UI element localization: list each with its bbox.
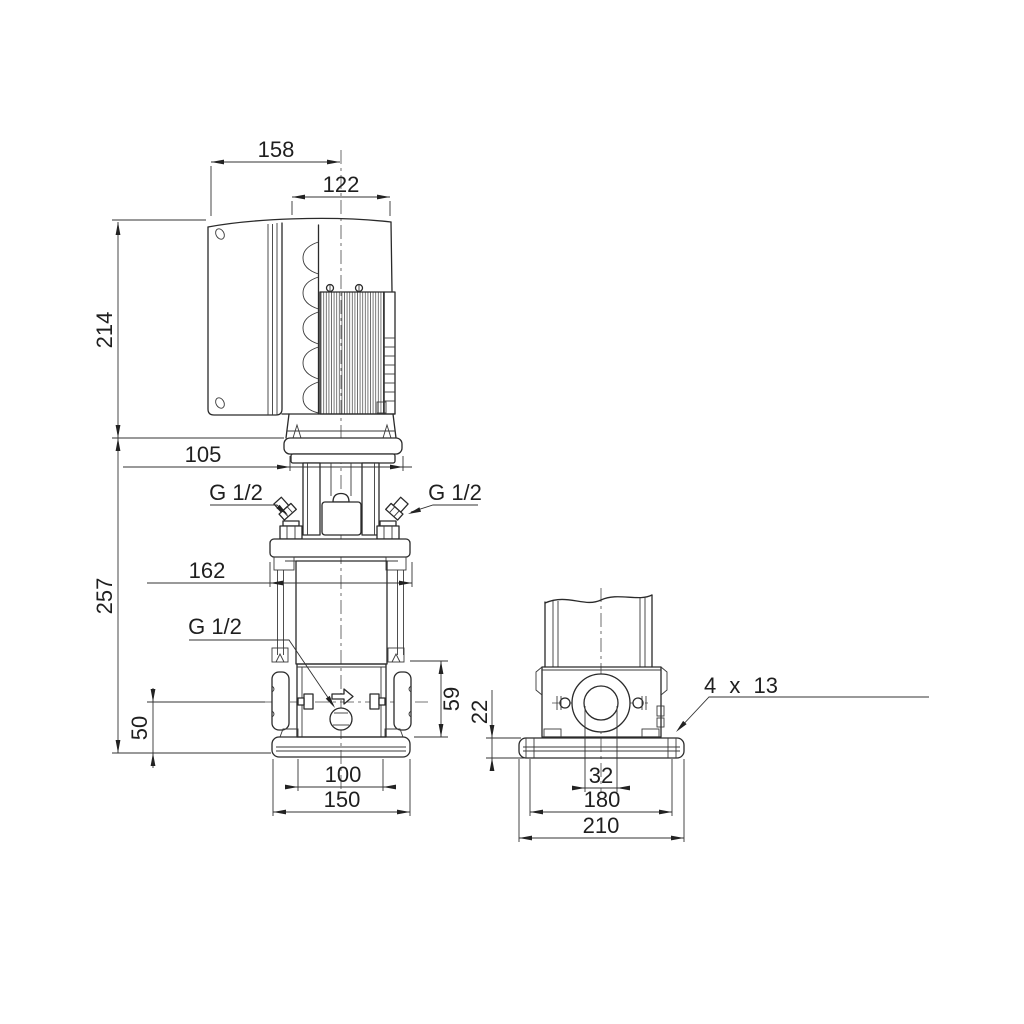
coupling-block bbox=[322, 502, 361, 535]
staybolt-nut bbox=[377, 526, 399, 539]
dim-label-32: 32 bbox=[589, 763, 613, 788]
dim-overall-width: 158 bbox=[211, 137, 340, 216]
dim-label-100: 100 bbox=[325, 762, 362, 787]
dim-base-height: 22 bbox=[467, 690, 524, 771]
drawing-page: 158 122 214 105 bbox=[0, 0, 1024, 1024]
drain-plug bbox=[330, 708, 352, 730]
g12-plug-right-icon bbox=[386, 495, 411, 520]
gauge-plug bbox=[560, 698, 570, 708]
dim-label-105: 105 bbox=[185, 442, 222, 467]
base-end bbox=[519, 738, 684, 758]
motor-body bbox=[282, 222, 395, 414]
port-bore bbox=[584, 686, 618, 720]
callout-mounting-holes: 4 x 13 bbox=[674, 673, 929, 734]
dimensions: 158 122 214 105 bbox=[92, 137, 929, 842]
coupling-dome bbox=[333, 494, 349, 503]
port-label-g12-right: G 1/2 bbox=[428, 480, 482, 505]
pump-dimension-drawing: 158 122 214 105 bbox=[0, 0, 1024, 1024]
g12-plug-left-icon bbox=[272, 495, 297, 520]
coupling-guard bbox=[303, 463, 379, 535]
cooling-fins bbox=[320, 292, 384, 414]
dim-label-150: 150 bbox=[324, 787, 361, 812]
dim-label-180: 180 bbox=[584, 787, 621, 812]
dim-label-214: 214 bbox=[92, 312, 117, 349]
dim-drain-height: 50 bbox=[127, 688, 265, 768]
end-view bbox=[519, 588, 684, 792]
callout-g12-left: G 1/2 bbox=[209, 480, 289, 517]
side-port-flange bbox=[272, 672, 289, 730]
adapter-flange bbox=[284, 438, 402, 454]
dim-label-158: 158 bbox=[258, 137, 295, 162]
staybolt-nut bbox=[280, 526, 302, 539]
cover-screw-icon bbox=[214, 227, 226, 240]
pump-sleeve bbox=[272, 561, 404, 664]
dim-label-22: 22 bbox=[467, 700, 492, 724]
callout-g12-drain: G 1/2 bbox=[188, 614, 337, 709]
dim-label-257: 257 bbox=[92, 578, 117, 615]
dim-chamber-height: 59 bbox=[410, 661, 464, 737]
dim-label-210: 210 bbox=[583, 813, 620, 838]
chamber-section bbox=[272, 664, 411, 737]
head-flange bbox=[270, 539, 410, 557]
side-port-flange bbox=[394, 672, 411, 730]
callout-g12-right: G 1/2 bbox=[407, 480, 482, 516]
pump-body-end bbox=[545, 595, 652, 667]
side-ribs bbox=[384, 338, 395, 401]
port-label-g12-left: G 1/2 bbox=[209, 480, 263, 505]
dim-label-162: 162 bbox=[189, 558, 226, 583]
side-view bbox=[208, 150, 428, 792]
gauge-plug bbox=[304, 694, 313, 709]
dim-label-122: 122 bbox=[323, 172, 360, 197]
mounting-holes-label: 4 x 13 bbox=[704, 673, 778, 698]
gauge-plug bbox=[633, 698, 643, 708]
gauge-plug bbox=[370, 694, 379, 709]
port-label-g12-drain: G 1/2 bbox=[188, 614, 242, 639]
motor-adapter bbox=[284, 414, 402, 463]
dim-label-59: 59 bbox=[439, 687, 464, 711]
dim-flange-width: 162 bbox=[147, 558, 412, 587]
cover-screw-icon bbox=[214, 396, 226, 409]
dim-motor-height: 214 bbox=[92, 220, 284, 438]
dim-label-50: 50 bbox=[127, 716, 152, 740]
chamber-end bbox=[536, 667, 667, 738]
